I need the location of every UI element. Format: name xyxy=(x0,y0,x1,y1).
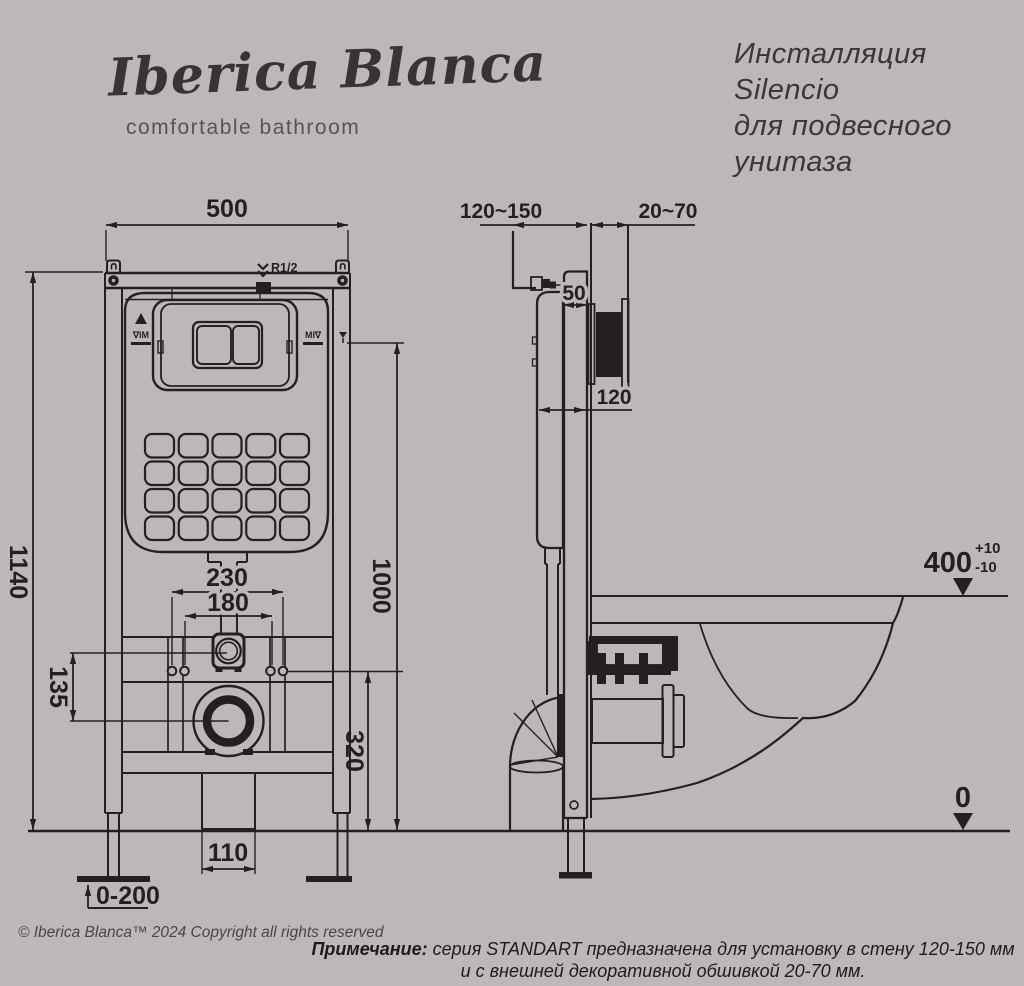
note-block: Примечание: серия STANDART предназначена… xyxy=(303,938,1023,982)
mounting-tab xyxy=(107,261,120,274)
dim-flush-pipe-height: 1000 xyxy=(367,558,395,614)
flush-button-large xyxy=(197,326,231,364)
dim-rod-spacing-outer: 230 xyxy=(206,564,248,592)
dim-floor-level: 0 xyxy=(955,782,971,814)
dim-tank-depth: 120 xyxy=(596,386,631,409)
flush-button-small xyxy=(233,326,259,364)
dim-frame-width: 500 xyxy=(206,195,248,223)
installation-drawing: 500 1140 1000 320 135 230 180 110 0-200 … xyxy=(0,0,1024,986)
datum-triangle-floor xyxy=(953,813,973,830)
dim-outlet-width: 110 xyxy=(208,839,248,867)
dim-inlet-to-drain: 135 xyxy=(44,666,72,708)
frame-rail-side xyxy=(564,272,587,819)
page: Iberica Blanca comfortable bathroom Инст… xyxy=(0,0,1024,986)
side-dimensions xyxy=(480,225,973,830)
water-level-mark xyxy=(131,313,323,345)
flush-actuator xyxy=(589,299,629,388)
dim-rim-tol-plus: +10 xyxy=(975,540,1000,557)
cistern-side xyxy=(537,292,563,548)
dim-drain-axis-height: 320 xyxy=(340,730,368,772)
cistern-grid xyxy=(145,434,309,540)
dim-frame-depth: 50 xyxy=(562,282,585,305)
water-level-mark-label: ∇IM xyxy=(305,330,322,340)
inlet-thread-label: R1/2 xyxy=(271,261,297,275)
note-line-2: и с внешней декоративной обшивкой 20-70 … xyxy=(303,960,1023,982)
note-text-1: серия STANDART предназначена для установ… xyxy=(433,939,1015,959)
level-marker-icon xyxy=(339,332,347,343)
outlet-connector xyxy=(592,685,684,757)
dim-install-depth: 120~150 xyxy=(460,200,542,223)
front-view xyxy=(25,225,1010,908)
dim-frame-height: 1140 xyxy=(4,545,32,599)
datum-triangle-rim xyxy=(953,578,973,596)
mounting-screw xyxy=(108,275,348,286)
drain-elbow xyxy=(510,694,565,830)
note-label: Примечание: xyxy=(311,939,427,959)
water-level-mark-label: ∇IM xyxy=(132,330,149,340)
dim-rim-tol-minus: -10 xyxy=(975,559,997,576)
water-inlet-icon xyxy=(256,264,271,294)
toilet-bowl xyxy=(591,596,1008,799)
note-line-1: Примечание: серия STANDART предназначена… xyxy=(303,938,1023,960)
dim-foot-adjust-range: 0-200 xyxy=(96,882,160,910)
flush-plate xyxy=(193,322,262,368)
dim-rim-height: 400 xyxy=(924,547,972,579)
dim-rod-spacing-inner: 180 xyxy=(207,589,249,617)
mounting-tab xyxy=(336,261,349,274)
wall-bracket xyxy=(513,231,536,288)
dim-cladding-thickness: 20~70 xyxy=(639,200,698,223)
fixing-hardware xyxy=(588,636,678,684)
access-window xyxy=(153,300,297,390)
